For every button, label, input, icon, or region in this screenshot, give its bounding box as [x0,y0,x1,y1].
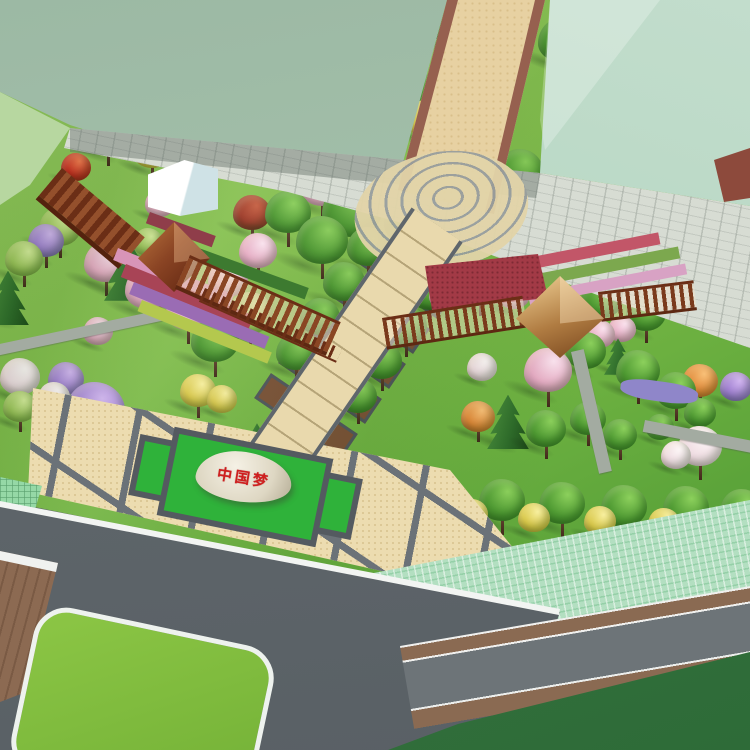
landscape-render: 中国梦 [0,0,750,750]
stone-text: 中国梦 [216,462,273,491]
